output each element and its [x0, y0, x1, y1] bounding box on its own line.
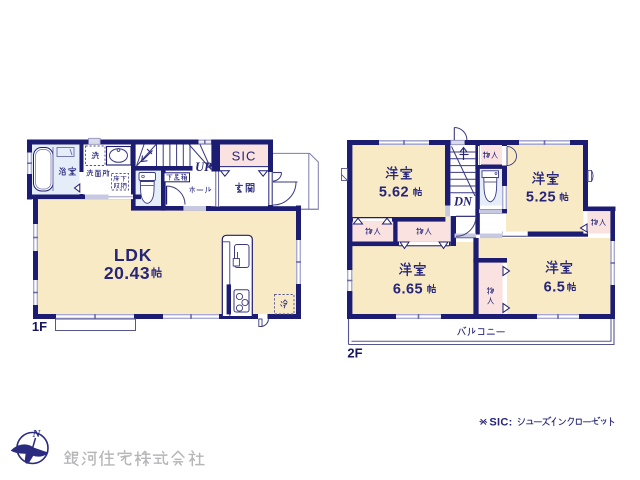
- svg-text:UP: UP: [195, 160, 212, 174]
- svg-text:SIC: SIC: [232, 149, 257, 164]
- svg-text:N: N: [32, 428, 42, 440]
- svg-text:1F: 1F: [32, 319, 47, 334]
- svg-text:LDK: LDK: [114, 245, 152, 265]
- svg-text:DN: DN: [453, 195, 473, 209]
- svg-text:6.65: 6.65: [393, 282, 423, 298]
- svg-text:2F: 2F: [347, 346, 362, 361]
- svg-text:SIC:: SIC:: [489, 416, 512, 428]
- svg-text:20.43: 20.43: [104, 263, 150, 283]
- svg-text:5.25: 5.25: [526, 190, 556, 206]
- svg-text:5.62: 5.62: [379, 185, 409, 201]
- svg-text:6.5: 6.5: [544, 280, 566, 296]
